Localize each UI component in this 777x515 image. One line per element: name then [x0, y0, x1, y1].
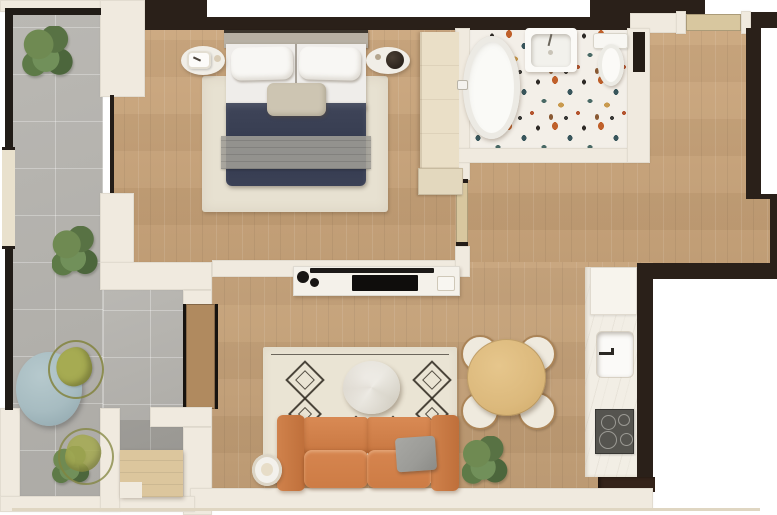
- sofa-arm-left: [277, 415, 305, 491]
- plant-terrace-middle: [52, 226, 98, 280]
- toilet-bowl: [598, 44, 624, 86]
- wall-slider-lintel: [150, 407, 212, 427]
- side-table-center: [261, 463, 273, 476]
- bed-fold-line: [295, 44, 297, 86]
- deck-step-notch: [120, 482, 142, 498]
- wall-top-dark-chunk: [590, 15, 630, 30]
- wardrobe: [420, 32, 459, 168]
- tv: [310, 268, 434, 273]
- bed-blanket: [221, 136, 371, 169]
- floor-plan: [0, 0, 777, 515]
- nightstand-left-cup: [214, 55, 221, 62]
- wall-kitchen-east: [637, 279, 653, 477]
- wall-top-dark-left: [145, 0, 207, 30]
- bed-pillow-right: [299, 46, 362, 81]
- coffee-table: [343, 361, 400, 414]
- cooktop-burner: [599, 431, 617, 449]
- dresser: [418, 168, 463, 195]
- bathroom-door-niche: [633, 32, 645, 72]
- bed-pillow-left: [231, 46, 294, 81]
- sofa-seat-cushion-left: [304, 450, 368, 488]
- bathtub: [463, 36, 520, 139]
- wall-terrace-bottom-left: [0, 408, 20, 510]
- cooktop-burner: [618, 414, 630, 426]
- speaker-small: [310, 278, 319, 287]
- sink-faucet-base: [611, 348, 614, 355]
- dining-table: [467, 339, 546, 416]
- cooktop-burner: [620, 433, 633, 446]
- media-box: [352, 275, 418, 291]
- rug-border-top: [271, 354, 449, 355]
- sofa-pillow: [395, 436, 437, 473]
- speaker-large: [297, 271, 309, 283]
- railing-top: [5, 8, 101, 15]
- plant-by-sofa: [462, 436, 508, 488]
- router-box: [437, 276, 455, 291]
- nightstand-right-cup: [375, 54, 381, 60]
- baseboard-line: [12, 508, 760, 511]
- wall-right: [746, 28, 761, 196]
- terrace-planter: [2, 147, 15, 249]
- wall-pillar-nw: [100, 0, 145, 97]
- cooktop-burner: [601, 415, 616, 430]
- tub-faucet: [457, 80, 468, 90]
- entrance-door: [686, 14, 741, 31]
- bedroom-window: [110, 95, 114, 195]
- wall-west-band: [100, 262, 212, 290]
- wall-pillar-west: [100, 193, 134, 265]
- bed-accent-pillow: [267, 83, 326, 116]
- outside-right: [761, 28, 777, 194]
- nightstand-plant-pot: [386, 51, 404, 69]
- vanity-drain: [548, 50, 553, 55]
- wall-bottom: [190, 488, 653, 510]
- wall-bathroom-south: [455, 148, 650, 163]
- wall-nook-right: [770, 196, 777, 266]
- sliding-door: [183, 304, 218, 409]
- entry-jamb-left: [676, 11, 686, 34]
- kitchen-cabinet: [590, 267, 637, 315]
- wall-corner-band-right: [637, 263, 777, 279]
- plant-terrace-top: [22, 26, 74, 80]
